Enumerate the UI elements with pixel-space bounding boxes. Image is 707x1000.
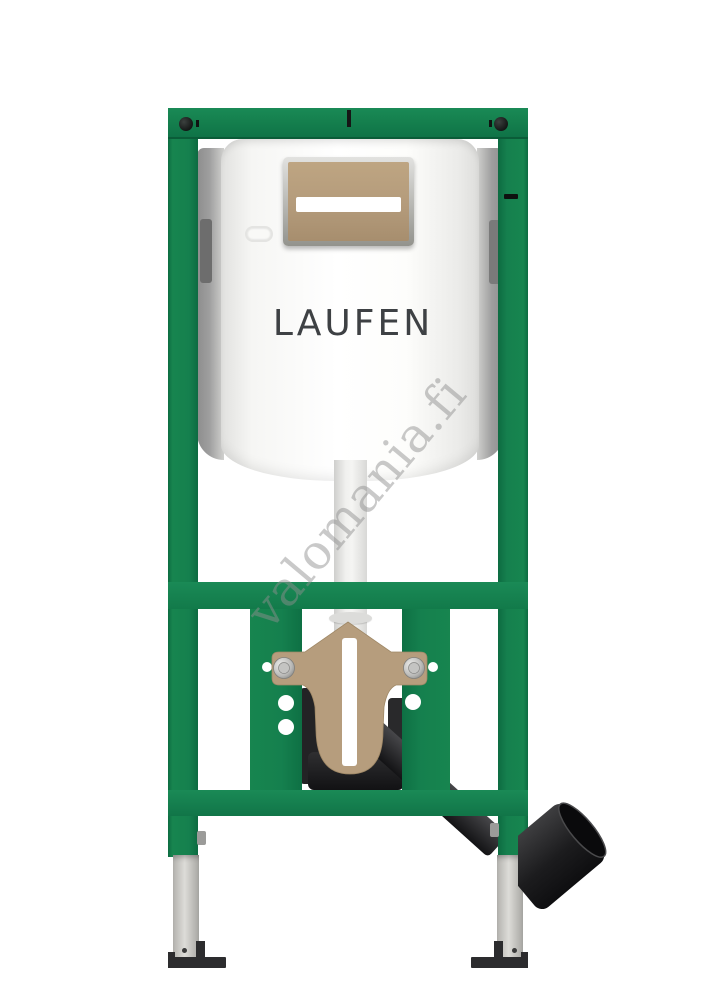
foot-plate-left-stem — [196, 941, 205, 968]
mounting-bolt-left-hex — [279, 663, 290, 674]
foot-plate-right-stem — [494, 941, 503, 968]
frame-corner-bolt-left — [179, 117, 193, 131]
foot-screw-left — [182, 948, 187, 953]
frame-crossbar-lower — [168, 790, 528, 816]
product-image: LAUFEN — [0, 0, 707, 1000]
frame-leg-right — [498, 139, 528, 857]
mounting-cover-slot — [342, 638, 357, 766]
cistern-service-button — [245, 226, 273, 242]
frame-mark-right — [489, 120, 492, 127]
foot-plate-right-tab — [521, 952, 528, 968]
frame-leg-left — [168, 139, 198, 857]
frame-pin-left — [197, 831, 206, 845]
frame-mark-left — [196, 120, 199, 127]
frame-crossbar-upper — [168, 582, 528, 609]
frame-pin-right — [490, 823, 499, 837]
cistern-bracket-left — [200, 219, 212, 283]
brand-logo: LAUFEN — [258, 303, 448, 345]
mounting-bolt-right-hex — [409, 663, 420, 674]
waste-outlet-elbow — [518, 790, 615, 915]
cistern-side-left — [197, 148, 224, 460]
foot-plate-left-tab — [168, 952, 175, 968]
flush-plate-slot — [296, 197, 401, 212]
foot-screw-right — [512, 948, 517, 953]
wc-mounting-cover — [258, 615, 443, 780]
frame-corner-bolt-right — [494, 117, 508, 131]
frame-center-mark — [347, 110, 351, 127]
frame-leg-screw-slot — [504, 194, 518, 199]
